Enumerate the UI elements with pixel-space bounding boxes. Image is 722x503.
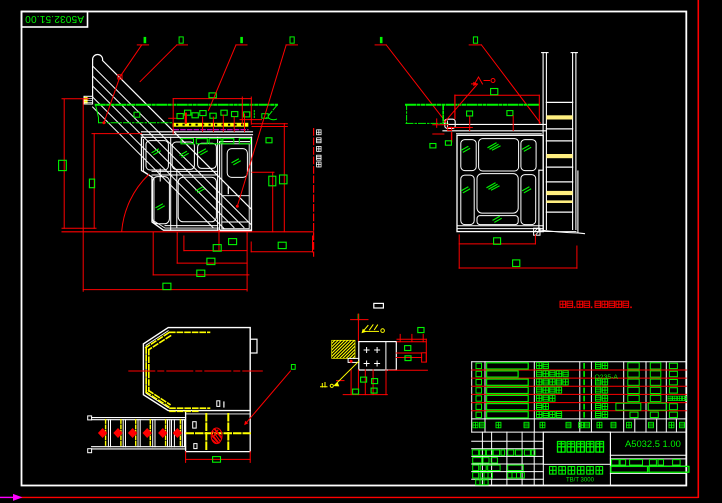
svg-text:A5032.51.00: A5032.51.00 [25,13,84,24]
svg-text:A5032.5 1.00: A5032.5 1.00 [625,438,681,449]
svg-text:Q235-A: Q235-A [595,374,619,381]
svg-text:TB/T 3000: TB/T 3000 [566,477,595,483]
